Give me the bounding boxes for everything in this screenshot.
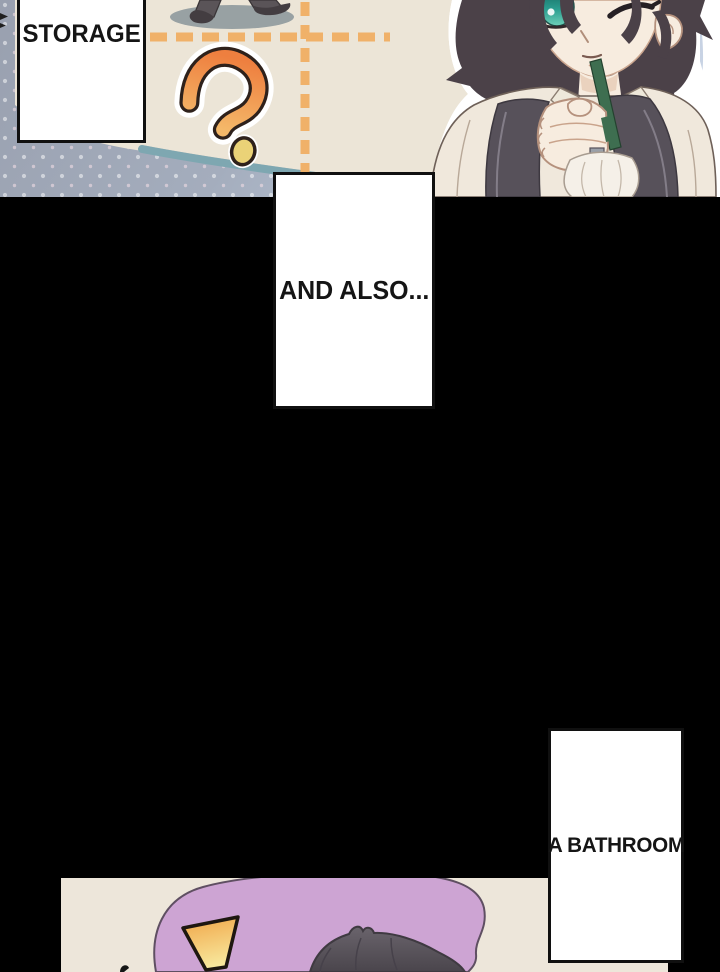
webtoon-page: STORAGE AND ALSO... A BATHROOM <box>0 0 720 972</box>
speech-box-bathroom: A BATHROOM <box>548 728 684 963</box>
speech-text: AND ALSO... <box>279 275 429 306</box>
speech-text: STORAGE <box>22 20 140 49</box>
character-illustration <box>430 0 720 197</box>
speech-box-and-also: AND ALSO... <box>273 172 435 409</box>
speech-box-storage: STORAGE <box>17 0 146 143</box>
speech-text: A BATHROOM <box>548 833 685 858</box>
